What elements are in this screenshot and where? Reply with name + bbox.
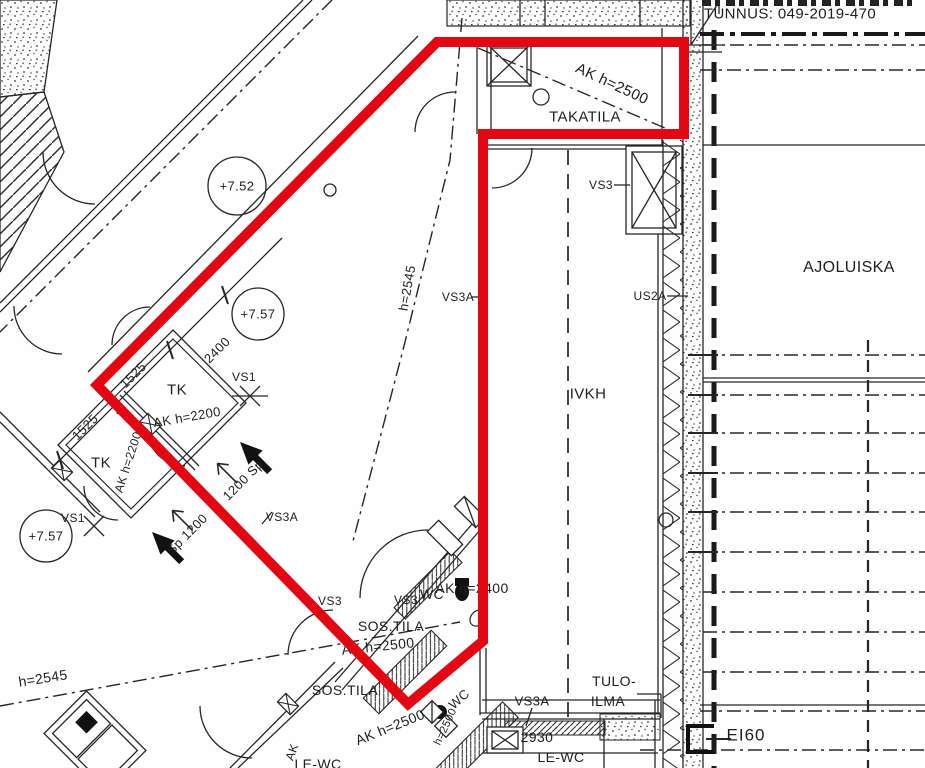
wall-label-vs3a-3: VS3A xyxy=(515,695,550,708)
room-label-ajoluiska: AJOLUISKA xyxy=(803,260,895,276)
room-label-tk1: TK xyxy=(167,383,187,398)
room-label-tulo-line2: ILMA xyxy=(591,694,625,708)
wall-label-vs1-2: VS1 xyxy=(61,512,85,524)
wall-label-vs3-1: VS3 xyxy=(318,595,342,607)
ivkh-room xyxy=(472,150,568,726)
wall-label-vs1-1: VS1 xyxy=(232,371,256,383)
top-wall-band xyxy=(447,0,690,26)
room-label-sos2: SOS.TILA xyxy=(312,683,378,697)
room-label-tk2: TK xyxy=(91,456,111,471)
height-contour-lines xyxy=(0,18,462,706)
level-label-752: +7.52 xyxy=(220,180,255,193)
wall-label-us2a: US2A xyxy=(634,290,667,302)
plan-id-label: TUNNUS: 049-2019-470 xyxy=(704,7,876,22)
level-label-757a: +7.57 xyxy=(241,308,276,321)
wall-label-vs3a-2: VS3A xyxy=(266,511,298,523)
wall-label-vs3-2: VS3 xyxy=(394,594,418,606)
room-label-lewc-1: LE-WC xyxy=(537,750,584,764)
dim-label-2930: 2930 xyxy=(521,730,554,744)
room-label-lewc-2: LE-WC xyxy=(294,757,341,768)
height-label-wc: AK h=2400 xyxy=(435,581,508,595)
wall-label-vs3a-1: VS3A xyxy=(442,291,474,303)
floor-plan-linework xyxy=(0,0,925,768)
room-label-sos1: SOS.TILA xyxy=(358,619,424,633)
floor-plan-canvas[interactable]: TUNNUS: 049-2019-470 AK h=2500 TAKATILA … xyxy=(0,0,925,768)
room-label-tulo-line1: TULO- xyxy=(592,674,636,688)
level-label-757b: +7.57 xyxy=(29,530,64,543)
room-label-takatila: TAKATILA xyxy=(549,110,621,125)
room-label-ivkh: IVKH xyxy=(570,387,607,402)
right-wall-assembly xyxy=(658,0,722,768)
topleft-terrain-hatch xyxy=(0,0,64,272)
wall-label-ei60: EI60 xyxy=(727,727,766,744)
wall-label-vs3-shaft: VS3 xyxy=(589,179,613,191)
